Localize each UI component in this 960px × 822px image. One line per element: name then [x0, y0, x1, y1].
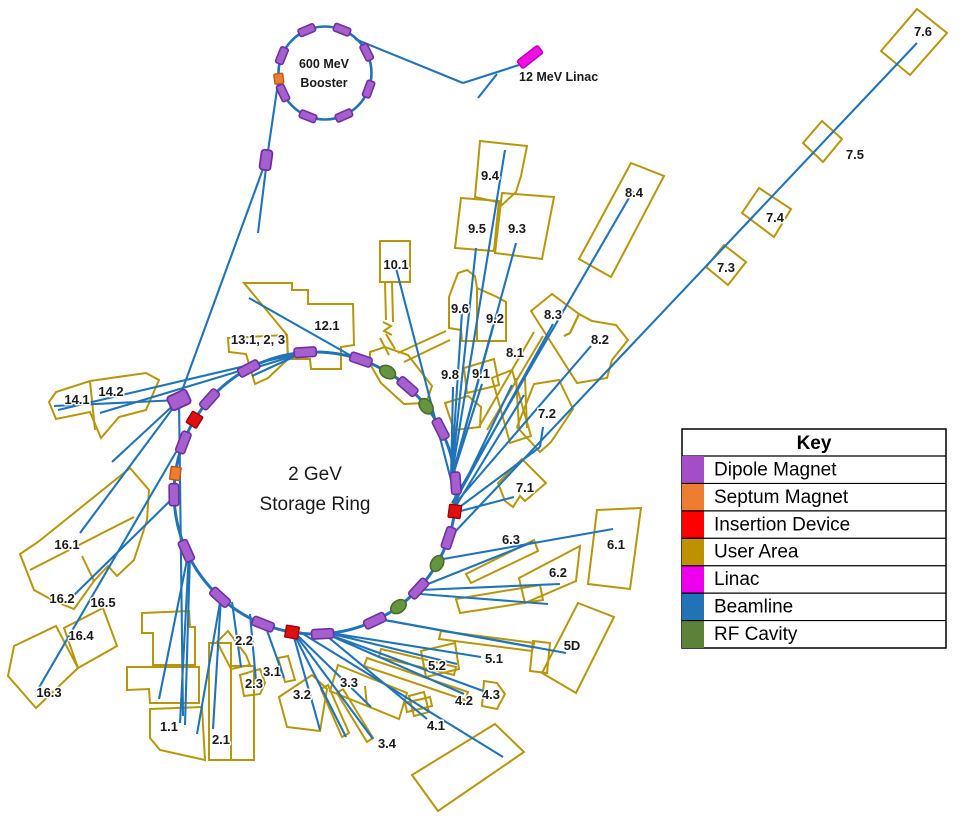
svg-text:4.2: 4.2 — [455, 693, 473, 708]
svg-text:3.4: 3.4 — [378, 736, 397, 751]
svg-text:4.3: 4.3 — [482, 687, 500, 702]
svg-text:7.1: 7.1 — [516, 480, 534, 495]
svg-text:RF Cavity: RF Cavity — [714, 624, 798, 645]
svg-text:16.4: 16.4 — [68, 628, 94, 643]
svg-text:9.1: 9.1 — [472, 366, 490, 381]
svg-text:16.2: 16.2 — [49, 591, 74, 606]
svg-text:Key: Key — [797, 433, 832, 454]
svg-text:Septum Magnet: Septum Magnet — [714, 487, 849, 508]
svg-text:Beamline: Beamline — [714, 597, 793, 618]
svg-text:9.5: 9.5 — [468, 221, 486, 236]
svg-text:2.2: 2.2 — [235, 633, 253, 648]
svg-text:6.3: 6.3 — [502, 532, 520, 547]
svg-text:10.1: 10.1 — [383, 257, 408, 272]
svg-text:7.3: 7.3 — [717, 260, 735, 275]
svg-text:5D: 5D — [564, 638, 581, 653]
svg-text:1.1: 1.1 — [160, 719, 178, 734]
svg-text:8.2: 8.2 — [591, 332, 609, 347]
svg-text:9.2: 9.2 — [486, 311, 504, 326]
svg-text:6.1: 6.1 — [607, 537, 625, 552]
svg-text:12.1: 12.1 — [314, 318, 339, 333]
svg-text:Storage Ring: Storage Ring — [260, 494, 371, 515]
svg-text:13.1, 2, 3: 13.1, 2, 3 — [231, 332, 285, 347]
svg-text:Insertion Device: Insertion Device — [714, 514, 850, 535]
svg-text:14.2: 14.2 — [98, 384, 123, 399]
svg-text:Dipole Magnet: Dipole Magnet — [714, 459, 837, 480]
svg-text:6.2: 6.2 — [549, 565, 567, 580]
svg-text:3.3: 3.3 — [340, 675, 358, 690]
svg-text:2.3: 2.3 — [245, 676, 263, 691]
svg-text:12 MeV Linac: 12 MeV Linac — [519, 70, 598, 84]
svg-text:8.4: 8.4 — [625, 185, 644, 200]
svg-text:3.2: 3.2 — [293, 687, 311, 702]
svg-text:16.5: 16.5 — [90, 595, 115, 610]
svg-text:5.1: 5.1 — [485, 651, 503, 666]
svg-text:7.5: 7.5 — [846, 147, 864, 162]
svg-text:600 MeV: 600 MeV — [299, 57, 350, 71]
svg-text:7.6: 7.6 — [914, 24, 932, 39]
svg-text:User Area: User Area — [714, 542, 799, 563]
svg-text:9.6: 9.6 — [451, 301, 469, 316]
svg-text:8.3: 8.3 — [544, 307, 562, 322]
svg-text:14.1: 14.1 — [64, 392, 89, 407]
svg-text:9.4: 9.4 — [481, 168, 500, 183]
svg-text:Linac: Linac — [714, 569, 759, 590]
svg-text:8.1: 8.1 — [506, 345, 524, 360]
svg-text:7.4: 7.4 — [766, 210, 785, 225]
svg-text:9.8: 9.8 — [441, 367, 459, 382]
svg-text:9.3: 9.3 — [508, 221, 526, 236]
svg-text:16.1: 16.1 — [54, 537, 79, 552]
svg-text:5.2: 5.2 — [428, 658, 446, 673]
svg-text:3.1: 3.1 — [263, 664, 281, 679]
svg-text:7.2: 7.2 — [538, 406, 556, 421]
svg-text:2 GeV: 2 GeV — [288, 464, 342, 485]
svg-text:4.1: 4.1 — [427, 718, 445, 733]
svg-text:16.3: 16.3 — [36, 685, 61, 700]
svg-text:2.1: 2.1 — [212, 732, 230, 747]
svg-text:Booster: Booster — [300, 76, 347, 90]
